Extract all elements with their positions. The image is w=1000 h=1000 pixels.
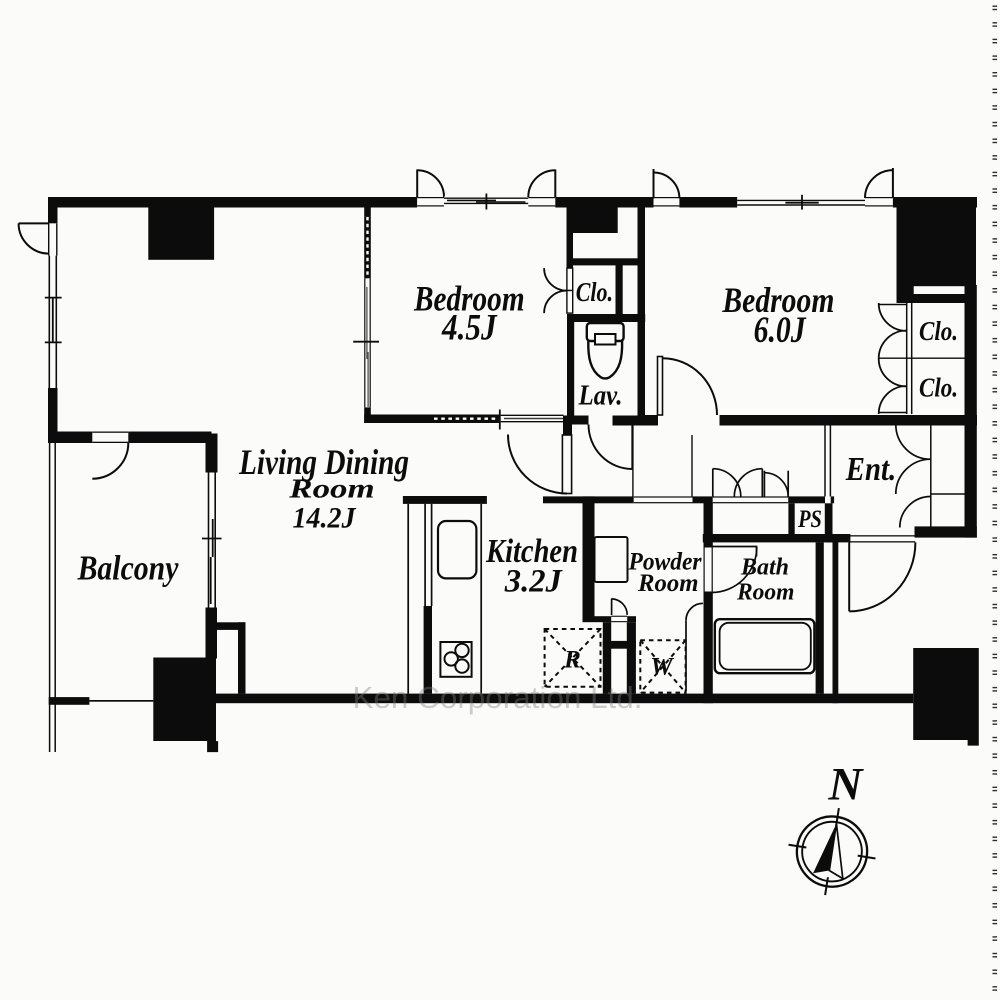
svg-text:6.0J: 6.0J (754, 310, 807, 351)
svg-text:Lav.: Lav. (578, 380, 623, 412)
svg-text:Bath: Bath (740, 555, 789, 581)
svg-text:Clo.: Clo. (919, 316, 958, 346)
svg-text:PS: PS (797, 506, 822, 533)
svg-text:4.5J: 4.5J (441, 307, 498, 348)
svg-text:Ent.: Ent. (845, 451, 896, 488)
svg-text:Clo.: Clo. (576, 277, 613, 307)
svg-text:Room: Room (637, 570, 698, 597)
svg-text:R: R (563, 647, 581, 674)
svg-text:N: N (828, 758, 865, 810)
svg-text:Clo.: Clo. (919, 373, 958, 403)
svg-text:Room: Room (736, 580, 794, 606)
svg-text:W: W (650, 654, 674, 681)
svg-text:Balcony: Balcony (77, 549, 179, 588)
svg-text:3.2J: 3.2J (504, 564, 564, 600)
svg-text:Room: Room (288, 474, 375, 504)
svg-text:14.2J: 14.2J (293, 502, 357, 534)
svg-text:Ken Corporation Ltd.: Ken Corporation Ltd. (353, 680, 643, 715)
